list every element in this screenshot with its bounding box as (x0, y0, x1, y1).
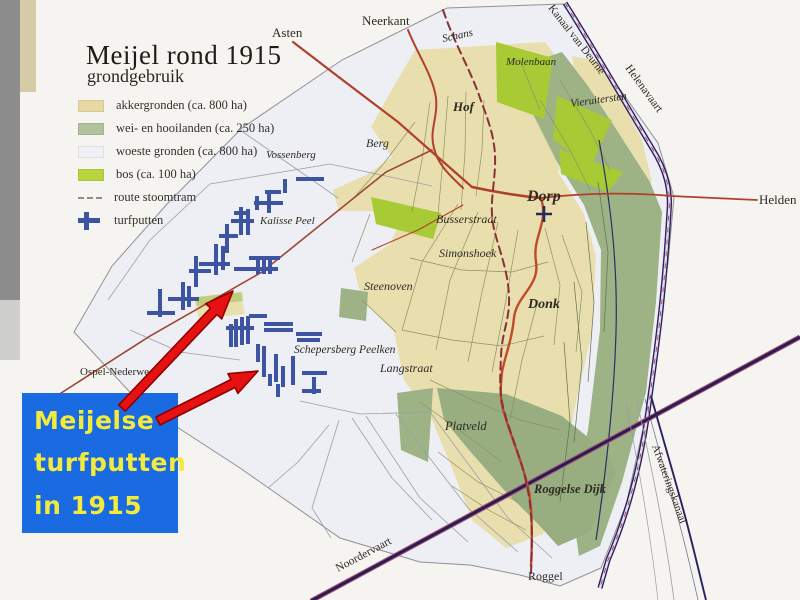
map-label-molenbaan: Molenbaan (505, 56, 557, 68)
map-label-kalisse-peel: Kalisse Peel (259, 215, 315, 227)
map-label-dorp: Dorp (526, 188, 561, 205)
turfput-mark (229, 324, 233, 347)
map-label-busserstraat: Busserstraat (436, 212, 497, 226)
turfput-mark (296, 332, 322, 336)
turfput-mark (283, 179, 287, 193)
slide: AstenNeerkantSchansMolenbaanHofVieruiter… (0, 0, 800, 600)
turfput-mark (302, 371, 327, 375)
turfput-mark (268, 374, 272, 386)
map-label-hof: Hof (452, 99, 476, 114)
map-label-simonshoek: Simonshoek (439, 246, 497, 260)
turfput-mark (189, 269, 211, 273)
turfput-mark (276, 384, 280, 397)
map-label-berg: Berg (366, 136, 389, 150)
map-label-platveld: Platveld (444, 419, 487, 433)
turfput-mark (239, 207, 243, 235)
turfput-mark (234, 319, 238, 347)
map-label-donk: Donk (527, 297, 560, 312)
turfput-mark (214, 244, 218, 275)
turfput-mark (296, 177, 324, 181)
turfput-mark (256, 344, 260, 362)
map-label-schepersberg-peelken: Schepersberg Peelken (294, 344, 396, 356)
turfput-mark (255, 196, 259, 210)
map-label-neerkant: Neerkant (362, 13, 410, 28)
map-label-roggelse-dijk: Roggelse Dijk (533, 482, 607, 496)
turfput-mark (267, 191, 271, 213)
turfput-mark (281, 366, 285, 387)
scan-edge (0, 0, 20, 300)
turfput-mark (268, 256, 272, 274)
turfput-mark (297, 338, 320, 342)
turfput-mark (262, 346, 266, 377)
turfput-mark (246, 316, 250, 344)
turfput-mark (291, 356, 295, 385)
map-label-helden: Helden (759, 192, 797, 207)
scan-edge-strip (20, 0, 36, 92)
turfput-mark (274, 354, 278, 382)
map-label-langstraat: Langstraat (379, 361, 433, 375)
map-label-asten: Asten (272, 25, 303, 40)
turfput-mark (264, 322, 293, 326)
turfput-mark (234, 267, 278, 271)
map-label-roggel: Roggel (528, 569, 563, 583)
turfput-mark (246, 209, 250, 235)
map-canvas: AstenNeerkantSchansMolenbaanHofVieruiter… (0, 0, 800, 600)
turfput-mark (240, 317, 244, 345)
map-label-ospel-nederweert: Ospel-Nederweert (80, 366, 161, 378)
scan-edge (0, 300, 20, 360)
turfput-mark (256, 256, 260, 274)
turfput-mark (264, 328, 293, 332)
turfput-mark (262, 256, 266, 274)
turfput-mark (158, 289, 162, 317)
turfput-mark (194, 256, 198, 287)
turfput-mark (181, 282, 185, 310)
turfput-mark (249, 314, 267, 318)
map-label-steenoven: Steenoven (364, 279, 413, 293)
turfput-mark (302, 389, 321, 393)
turfput-mark (221, 246, 225, 270)
turfput-mark (187, 286, 191, 307)
turfput-mark (225, 224, 229, 253)
map-label-vossenberg: Vossenberg (266, 149, 316, 161)
